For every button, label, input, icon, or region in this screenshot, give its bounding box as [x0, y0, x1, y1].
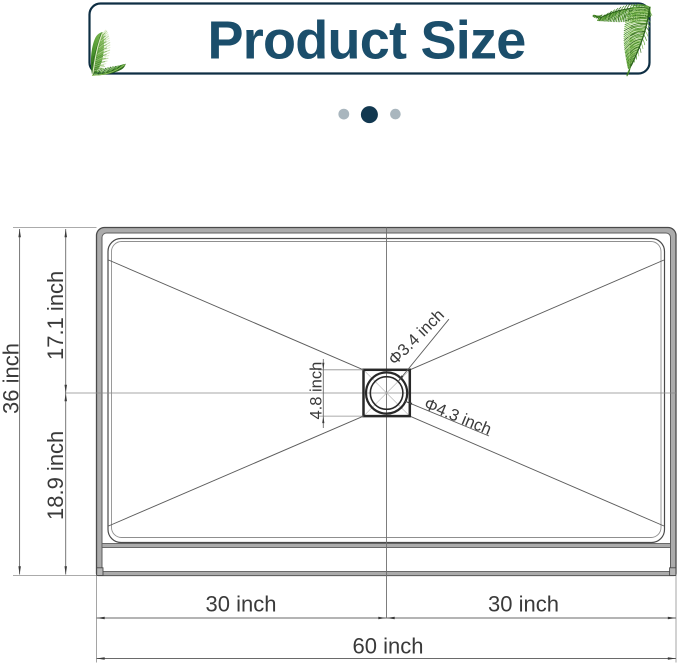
svg-text:4.8 inch: 4.8 inch [308, 362, 326, 420]
svg-text:30 inch: 30 inch [206, 592, 277, 617]
svg-text:17.1 inch: 17.1 inch [43, 271, 68, 360]
svg-text:36 inch: 36 inch [0, 343, 23, 414]
svg-text:60 inch: 60 inch [353, 634, 424, 659]
svg-text:Φ4.3 inch: Φ4.3 inch [421, 395, 493, 439]
svg-text:Product Size: Product Size [207, 11, 525, 71]
svg-text:30 inch: 30 inch [488, 592, 559, 617]
svg-text:18.9 inch: 18.9 inch [43, 431, 68, 520]
